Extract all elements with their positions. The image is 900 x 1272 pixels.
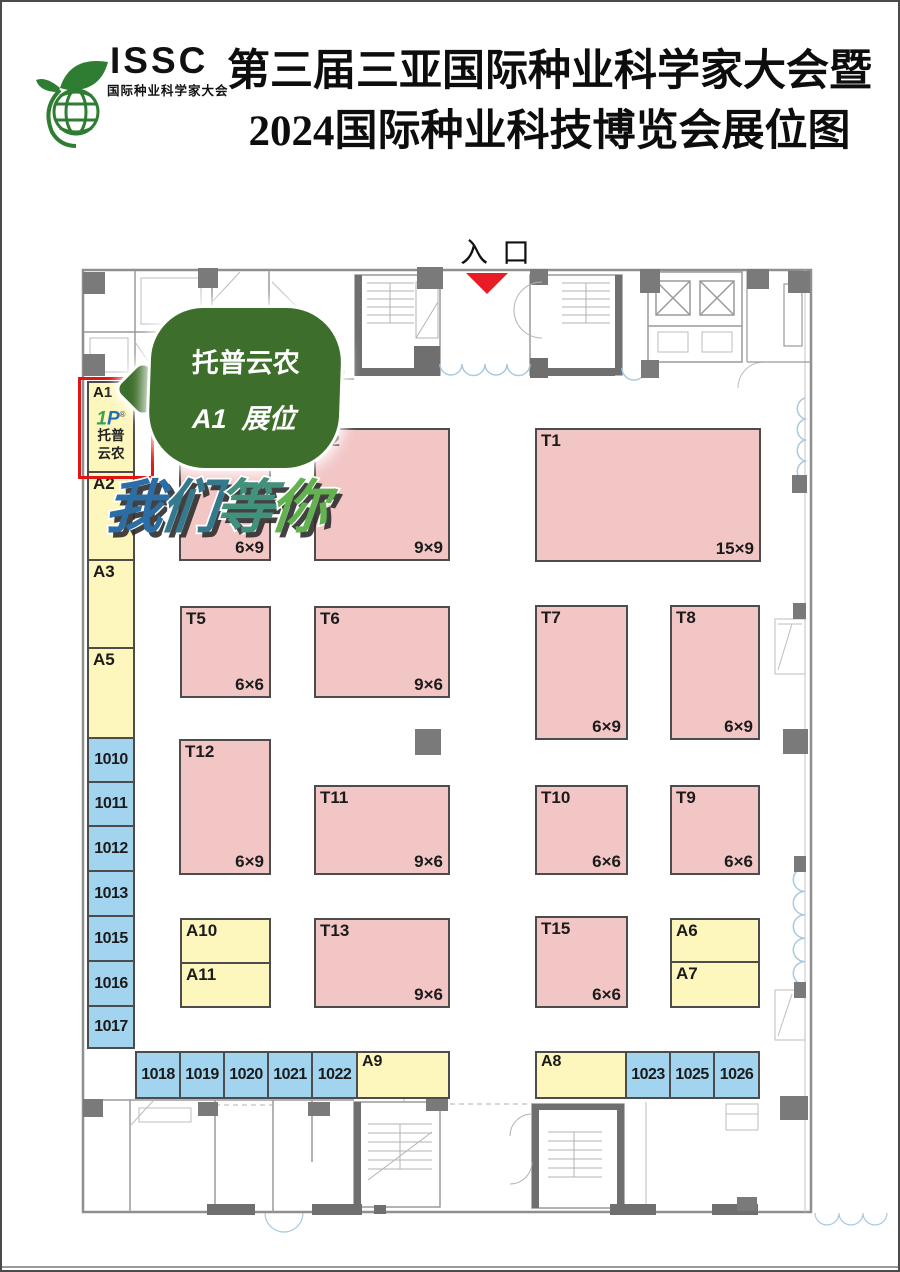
booth-id: A7: [676, 964, 698, 984]
booth-id: T6: [320, 609, 340, 629]
callout-bubble: 托普云农 A1 展位: [147, 308, 343, 468]
booth-1019: 1019: [179, 1051, 225, 1099]
booth-id: 1013: [89, 872, 133, 915]
booth-t2: T2 9×9: [314, 428, 450, 561]
booth-size: 6×6: [592, 985, 621, 1005]
booth-a10: A10: [180, 918, 271, 964]
booth-t1: T1 15×9: [535, 428, 761, 562]
booth-size: 6×6: [235, 675, 264, 695]
booth-size: 9×9: [414, 538, 443, 558]
booth-id: A11: [186, 965, 216, 985]
booth-id: 1021: [269, 1053, 311, 1097]
banner-char: 你: [267, 475, 329, 540]
booth-a8: A8: [535, 1051, 627, 1099]
booth-id: T15: [541, 919, 570, 939]
booth-1012: 1012: [87, 825, 135, 872]
booth-1015: 1015: [87, 915, 135, 962]
banner-char: 们: [157, 475, 219, 540]
booth-1022: 1022: [311, 1051, 358, 1099]
booth-a7: A7: [670, 961, 760, 1008]
booth-id: 1020: [225, 1053, 267, 1097]
booth-1013: 1013: [87, 870, 135, 917]
booth-1016: 1016: [87, 960, 135, 1007]
booth-1026: 1026: [713, 1051, 760, 1099]
booth-size: 6×6: [592, 852, 621, 872]
booth-id: A5: [93, 650, 115, 670]
booth-t11: T11 9×6: [314, 785, 450, 875]
booth-size: 9×6: [414, 675, 443, 695]
booth-1025: 1025: [669, 1051, 715, 1099]
booth-size: 6×6: [724, 852, 753, 872]
booth-a5: A5: [87, 647, 135, 739]
banner-char: 我: [102, 475, 164, 540]
booth-id: T5: [186, 609, 206, 629]
booth-size: 6×9: [724, 717, 753, 737]
booth-id: T13: [320, 921, 349, 941]
booth-1017: 1017: [87, 1005, 135, 1049]
booth-1018: 1018: [135, 1051, 181, 1099]
booth-id: 1017: [89, 1007, 133, 1047]
booth-size: 9×6: [414, 985, 443, 1005]
booth-id: 1022: [313, 1053, 356, 1097]
booth-size: 6×9: [235, 852, 264, 872]
booth-id: T11: [320, 788, 348, 808]
booth-id: A6: [676, 921, 698, 941]
booth-t15: T15 6×6: [535, 916, 628, 1008]
booth-id: T1: [541, 431, 561, 451]
booth-1020: 1020: [223, 1051, 269, 1099]
booth-t8: T8 6×9: [670, 605, 760, 740]
booth-id: 1026: [715, 1053, 758, 1097]
booth-id: 1019: [181, 1053, 223, 1097]
waiting-banner: 我们等你: [102, 460, 331, 544]
booth-id: 1018: [137, 1053, 179, 1097]
booth-t9: T9 6×6: [670, 785, 760, 875]
booth-1023: 1023: [625, 1051, 671, 1099]
exhibition-floorplan-poster: ISSC 国际种业科学家大会 第三届三亚国际种业科学家大会暨 2024国际种业科…: [0, 0, 900, 1272]
booth-size: 6×9: [592, 717, 621, 737]
booth-id: 1011: [89, 783, 133, 825]
booth-size: 15×9: [716, 539, 754, 559]
booth-id: 1023: [627, 1053, 669, 1097]
booth-t10: T10 6×6: [535, 785, 628, 875]
booth-id: 1016: [89, 962, 133, 1005]
booth-t12: T12 6×9: [179, 739, 271, 875]
booth-t7: T7 6×9: [535, 605, 628, 740]
booth-t5: T5 6×6: [180, 606, 271, 698]
booth-id: T8: [676, 608, 696, 628]
booth-a9: A9: [356, 1051, 450, 1099]
booth-1010: 1010: [87, 737, 135, 783]
callout-line2: A1 展位: [192, 397, 297, 436]
callout-line1: 托普云农: [191, 341, 300, 380]
booth-id: A10: [186, 921, 217, 941]
banner-char: 等: [212, 475, 274, 540]
booth-a3: A3: [87, 559, 135, 649]
booth-id: 1010: [89, 739, 133, 781]
booth-id: A8: [541, 1053, 561, 1071]
booth-id: 1025: [671, 1053, 713, 1097]
booth-id: 1012: [89, 827, 133, 870]
booth-id: T9: [676, 788, 696, 808]
booth-id: T7: [541, 608, 561, 628]
booth-size: 9×6: [414, 852, 443, 872]
booth-t6: T6 9×6: [314, 606, 450, 698]
booth-id: 1015: [89, 917, 133, 960]
booth-1011: 1011: [87, 781, 135, 827]
booth-t13: T13 9×6: [314, 918, 450, 1008]
booth-id: A9: [362, 1053, 382, 1071]
booth-id: T10: [541, 788, 570, 808]
booth-a11: A11: [180, 962, 271, 1008]
booth-id: T12: [185, 742, 214, 762]
booth-id: A3: [93, 562, 115, 582]
booth-a6: A6: [670, 918, 760, 963]
booth-1021: 1021: [267, 1051, 313, 1099]
